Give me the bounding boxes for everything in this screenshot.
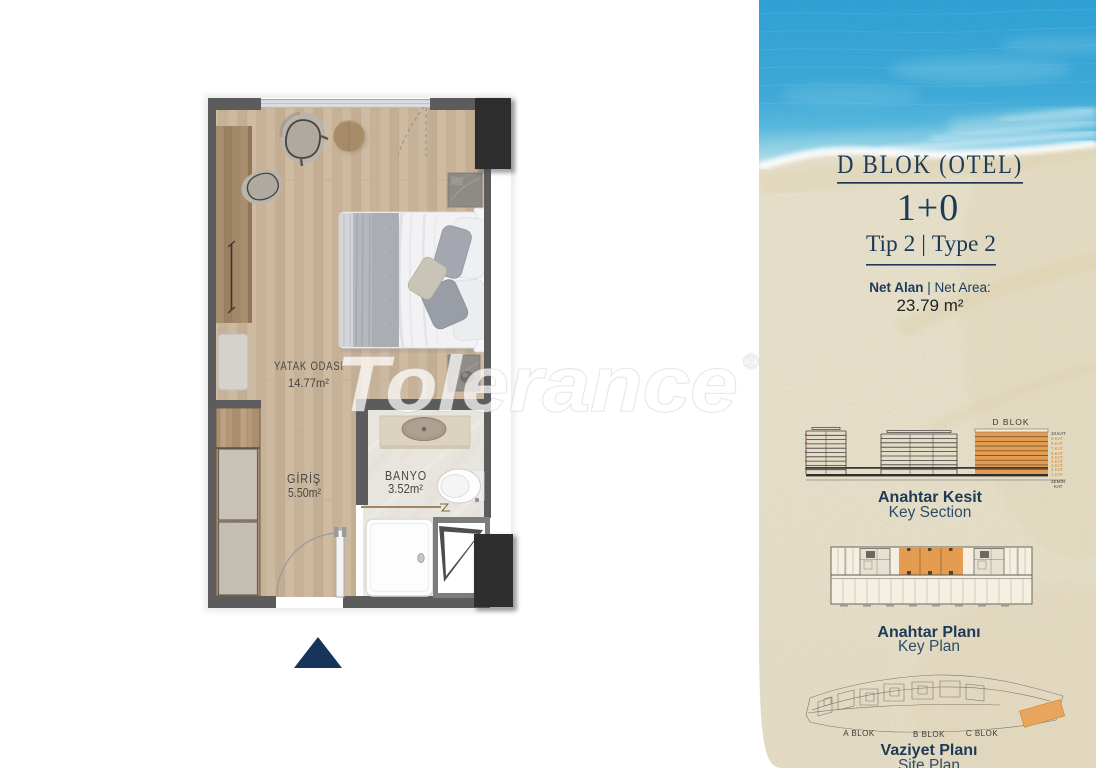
- svg-text:Site Plan: Site Plan: [898, 757, 960, 768]
- svg-text:D BLOK (OTEL): D BLOK (OTEL): [837, 150, 1023, 179]
- svg-text:B BLOK: B BLOK: [913, 730, 945, 739]
- svg-text:A BLOK: A BLOK: [843, 729, 875, 738]
- svg-text:14.77m²: 14.77m²: [288, 376, 329, 390]
- svg-text:1.KAT: 1.KAT: [1051, 472, 1063, 477]
- svg-text:Tolerance: Tolerance: [336, 339, 738, 428]
- svg-text:Net Alan | Net Area:: Net Alan | Net Area:: [869, 280, 991, 295]
- svg-text:Tip 2 | Type 2: Tip 2 | Type 2: [866, 231, 996, 256]
- svg-text:23.79 m²: 23.79 m²: [896, 296, 963, 315]
- svg-text:5.50m²: 5.50m²: [288, 486, 321, 500]
- svg-text:3.52m²: 3.52m²: [388, 482, 423, 496]
- svg-text:Key Section: Key Section: [889, 504, 972, 521]
- svg-text:BANYO: BANYO: [385, 469, 427, 483]
- svg-text:KAT: KAT: [1054, 484, 1063, 489]
- svg-text:Key Plan: Key Plan: [898, 638, 960, 655]
- svg-text:®: ®: [743, 351, 759, 374]
- svg-text:1+0: 1+0: [897, 187, 959, 229]
- svg-text:YATAK ODASI: YATAK ODASI: [274, 359, 344, 373]
- svg-text:C BLOK: C BLOK: [966, 729, 999, 738]
- svg-text:D BLOK: D BLOK: [992, 417, 1029, 427]
- svg-text:GİRİŞ: GİRİŞ: [287, 472, 321, 486]
